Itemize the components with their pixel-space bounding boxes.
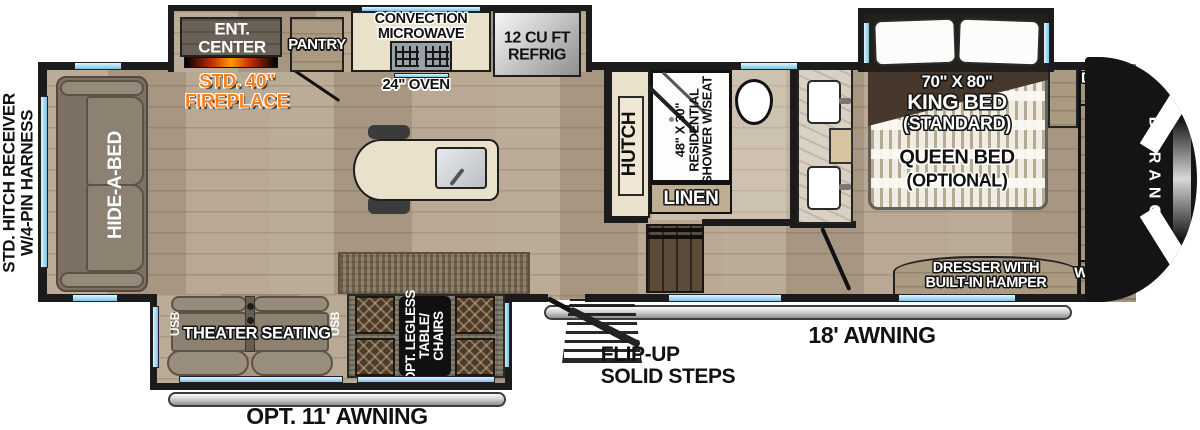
window-living-slide-left: [152, 306, 159, 368]
vanity: [797, 64, 853, 224]
pillow-left: [873, 18, 957, 67]
vanity-faucet-bottom: [839, 184, 851, 190]
sofa-label: HIDE-A-BED: [106, 131, 126, 239]
window-living-slide-bottom1: [179, 376, 343, 383]
wall-bottom-mid1: [510, 294, 548, 302]
vanity-faucet-top: [839, 98, 851, 104]
opt-awning-label: OPT. 11' AWNING: [246, 405, 427, 429]
fireplace-glow: [184, 57, 278, 68]
bedroom-stairs: [646, 224, 704, 293]
hall-wall-left: [604, 216, 648, 223]
cupholder-2: [247, 317, 254, 324]
nightstand: [1048, 66, 1078, 128]
wall-top-mid: [588, 62, 864, 70]
window-bottom-bedroom: [898, 294, 1016, 302]
microwave-label: CONVECTION MICROWAVE: [375, 12, 468, 42]
hitch-label-line1: STD. HITCH RECEIVER: [0, 93, 18, 272]
dinette-chair-2: [355, 338, 395, 376]
fridge-label: 12 CU FT REFRIG: [504, 30, 570, 63]
opt-awning-bar: [168, 392, 506, 407]
pantry-label: PANTRY: [288, 37, 346, 53]
window-bed-slide-left: [863, 22, 870, 64]
cooktop: [390, 41, 452, 72]
sofa-arm-bottom: [60, 272, 144, 288]
hide-a-bed-sofa: [56, 76, 148, 292]
linen-label: LINEN: [663, 189, 718, 209]
bed-label-king: KING BED: [907, 92, 1006, 114]
theater-footrest-left: [171, 296, 247, 312]
usb-label-left: USB: [169, 312, 181, 336]
bed-label-standard: (STANDARD): [903, 115, 1011, 134]
bed-label-optional: (OPTIONAL): [907, 172, 1008, 191]
front-cap: DURANGO: [1085, 57, 1197, 302]
floorplan-scene: STD. HITCH RECEIVER W/4-PIN HARNESS HIDE…: [0, 0, 1200, 430]
burner-right: [425, 46, 449, 67]
hitch-label: STD. HITCH RECEIVER W/4-PIN HARNESS: [0, 93, 35, 272]
steps-label: FLIP-UP SOLID STEPS: [601, 344, 735, 388]
window-bottom-left: [72, 294, 118, 302]
island-stool-top: [368, 125, 410, 139]
vanity-sink-top: [807, 80, 841, 124]
window-bottom-hall: [668, 294, 782, 302]
dresser-label: DRESSER WITH BUILT-IN HAMPER: [925, 261, 1046, 291]
oven-handle: [394, 73, 449, 78]
vanity-sink-bottom: [807, 166, 841, 210]
shower-label: 48" X 30" RESIDENTIAL SHOWER W/SEAT: [674, 76, 715, 184]
dinette-chair-3: [455, 296, 495, 334]
oven-label: 24" OVEN: [382, 77, 449, 93]
cupholder-1: [247, 303, 254, 310]
kitchen-slide: ENT. CENTER PANTRY CONVECTION MICROWAVE …: [168, 5, 592, 72]
vanity-center-cabinet: [829, 128, 853, 164]
kitchen-island: [353, 139, 499, 201]
cap-sheen: [1173, 119, 1191, 239]
dinette-chair-4: [455, 338, 495, 376]
window-rear-wall: [40, 96, 48, 268]
pillow-right: [957, 18, 1041, 67]
bed-slide: [858, 8, 1054, 72]
kitchen-rug: [338, 252, 530, 295]
theater-back-right: [251, 350, 333, 376]
stair-tread-1: [648, 228, 702, 232]
theater-label: THEATER SEATING: [183, 325, 330, 342]
window-top-bath: [740, 62, 798, 70]
sofa-arm-top: [60, 80, 144, 96]
wall-bottom-mid2: [585, 294, 1105, 302]
ent-center-label: ENT. CENTER: [198, 20, 266, 55]
bath-hall-wall: [790, 64, 797, 224]
bed-label-queen: QUEEN BED: [899, 148, 1014, 169]
burner-left: [395, 46, 419, 67]
living-slide: USB USB THEATER SEATING OPT. LEGLESS TAB…: [150, 294, 512, 390]
main-awning-label: 18' AWNING: [808, 324, 935, 348]
stair-tread-2: [648, 235, 702, 239]
hitch-label-line2: W/4-PIN HARNESS: [18, 93, 36, 272]
dinette-table-label: OPT. LEGLESS TABLE/ CHAIRS: [404, 290, 446, 382]
bed-label-size: 70" X 80": [921, 73, 992, 91]
window-top-left: [74, 62, 122, 70]
fireplace-label: STD. 40" FIREPLACE: [185, 72, 289, 112]
theater-footrest-right: [253, 296, 329, 312]
window-bed-slide-right: [1043, 22, 1050, 64]
hall-wall-right: [702, 219, 792, 226]
brand-logo: DURANGO: [1145, 117, 1162, 242]
window-living-slide-bottom2: [357, 376, 495, 383]
theater-back-left: [167, 350, 249, 376]
hutch-label: HUTCH: [620, 112, 640, 177]
dinette-chair-1: [355, 296, 395, 334]
